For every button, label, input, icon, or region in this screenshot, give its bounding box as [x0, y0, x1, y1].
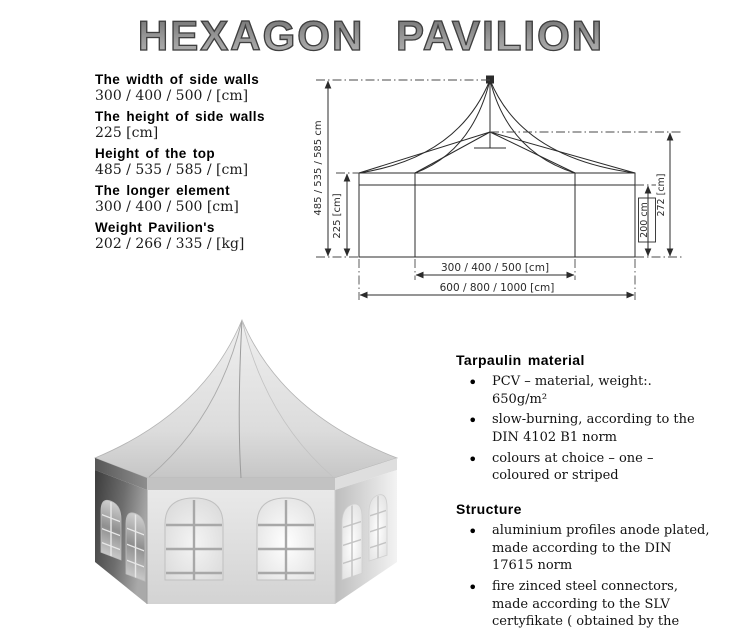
spec-label: Height of the top [95, 145, 305, 162]
pavilion-outline [359, 76, 635, 257]
bullet-item: colours at choice – one – coloured or st… [456, 450, 710, 485]
section-heading-tarpaulin: Tarpaulin material [456, 352, 710, 368]
spec-value: 202 / 266 / 335 / [kg] [95, 236, 305, 253]
pavilion-illustration [55, 313, 450, 615]
dim-label-wall-height: 225 [cm] [332, 193, 343, 238]
tarpaulin-bullet-list: PCV – material, weight:. 650g/m² slow-bu… [456, 373, 710, 485]
eave-band-front [147, 478, 335, 490]
structure-bullet-list: aluminium profiles anode plated, made ac… [456, 522, 710, 628]
dim-label-outer-width: 600 / 800 / 1000 [cm] [440, 282, 555, 294]
spec-label: The width of side walls [95, 71, 305, 88]
spec-item: Weight Pavilion's 202 / 266 / 335 / [kg] [95, 219, 305, 253]
document-page: HEXAGON PAVILION The width of side walls… [0, 0, 742, 628]
spec-item: The longer element 300 / 400 / 500 [cm] [95, 182, 305, 216]
page-title-text: HEXAGON PAVILION [138, 12, 604, 60]
info-column: Tarpaulin material PCV – material, weigh… [456, 352, 710, 628]
bullet-item: aluminium profiles anode plated, made ac… [456, 522, 710, 575]
spec-item: The width of side walls 300 / 400 / 500 … [95, 71, 305, 105]
dim-label-inner-width: 300 / 400 / 500 [cm] [441, 262, 549, 274]
dim-label-272: 272 [cm] [656, 173, 667, 216]
spec-value: 300 / 400 / 500 / [cm] [95, 88, 305, 105]
bullet-item: fire zinced steel connectors, made accor… [456, 578, 710, 628]
tent-roof [95, 320, 397, 478]
dim-label-200: 200 cm [639, 202, 650, 238]
bullet-item: PCV – material, weight:. 650g/m² [456, 373, 710, 408]
spec-item: Height of the top 485 / 535 / 585 / [cm] [95, 145, 305, 179]
technical-drawing: 485 / 535 / 585 cm 225 [cm] 200 cm 272 [… [310, 70, 705, 312]
page-title: HEXAGON PAVILION [0, 12, 742, 60]
spec-value: 485 / 535 / 585 / [cm] [95, 162, 305, 179]
spec-label: Weight Pavilion's [95, 219, 305, 236]
spec-list: The width of side walls 300 / 400 / 500 … [95, 71, 305, 256]
spec-value: 300 / 400 / 500 [cm] [95, 199, 305, 216]
spec-label: The longer element [95, 182, 305, 199]
dim-label-total-height: 485 / 535 / 585 cm [313, 120, 324, 215]
spec-value: 225 [cm] [95, 125, 305, 142]
section-heading-structure: Structure [456, 501, 710, 517]
bullet-item: slow-burning, according to the DIN 4102 … [456, 411, 710, 446]
spec-label: The height of side walls [95, 108, 305, 125]
spec-item: The height of side walls 225 [cm] [95, 108, 305, 142]
